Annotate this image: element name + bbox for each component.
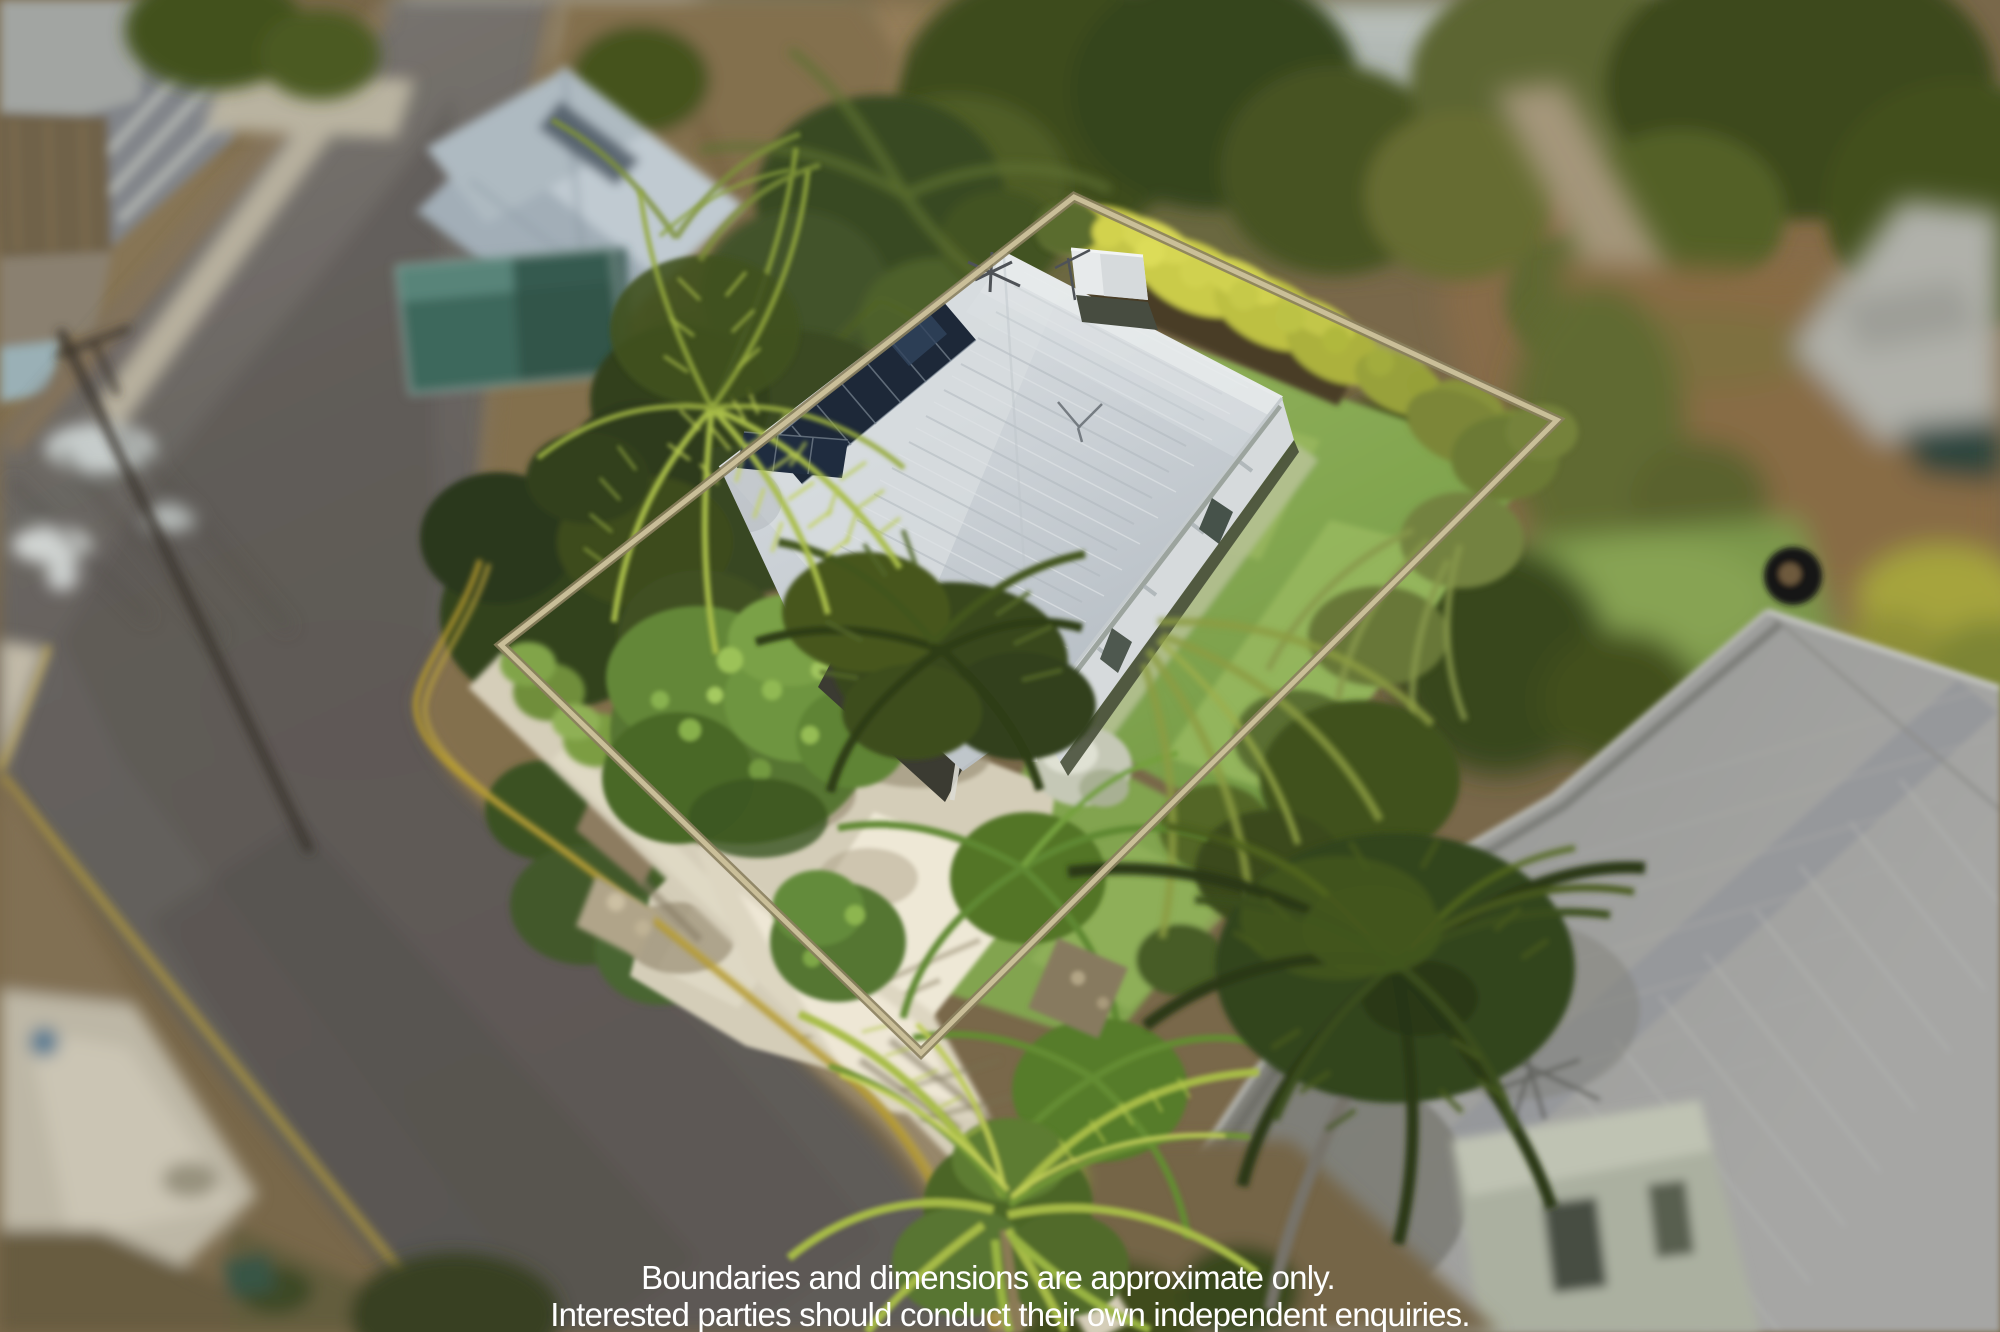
svg-text:Boundaries and dimensions are: Boundaries and dimensions are approximat… [641,1259,1335,1296]
svg-text:Interested parties should cond: Interested parties should conduct their … [550,1296,1470,1332]
